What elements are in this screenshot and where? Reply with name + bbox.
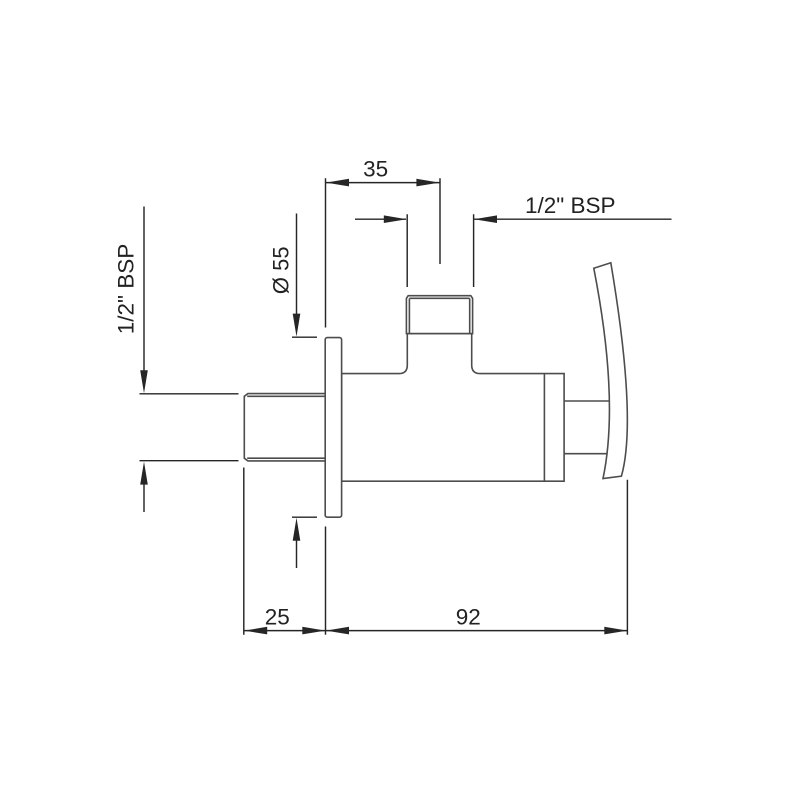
svg-text:1/2" BSP: 1/2" BSP [525,193,616,218]
svg-text:35: 35 [363,156,388,181]
svg-text:1/2" BSP: 1/2" BSP [113,244,138,335]
svg-text:92: 92 [456,605,481,630]
svg-text:25: 25 [265,605,290,630]
svg-text:Ø 55: Ø 55 [269,246,294,294]
